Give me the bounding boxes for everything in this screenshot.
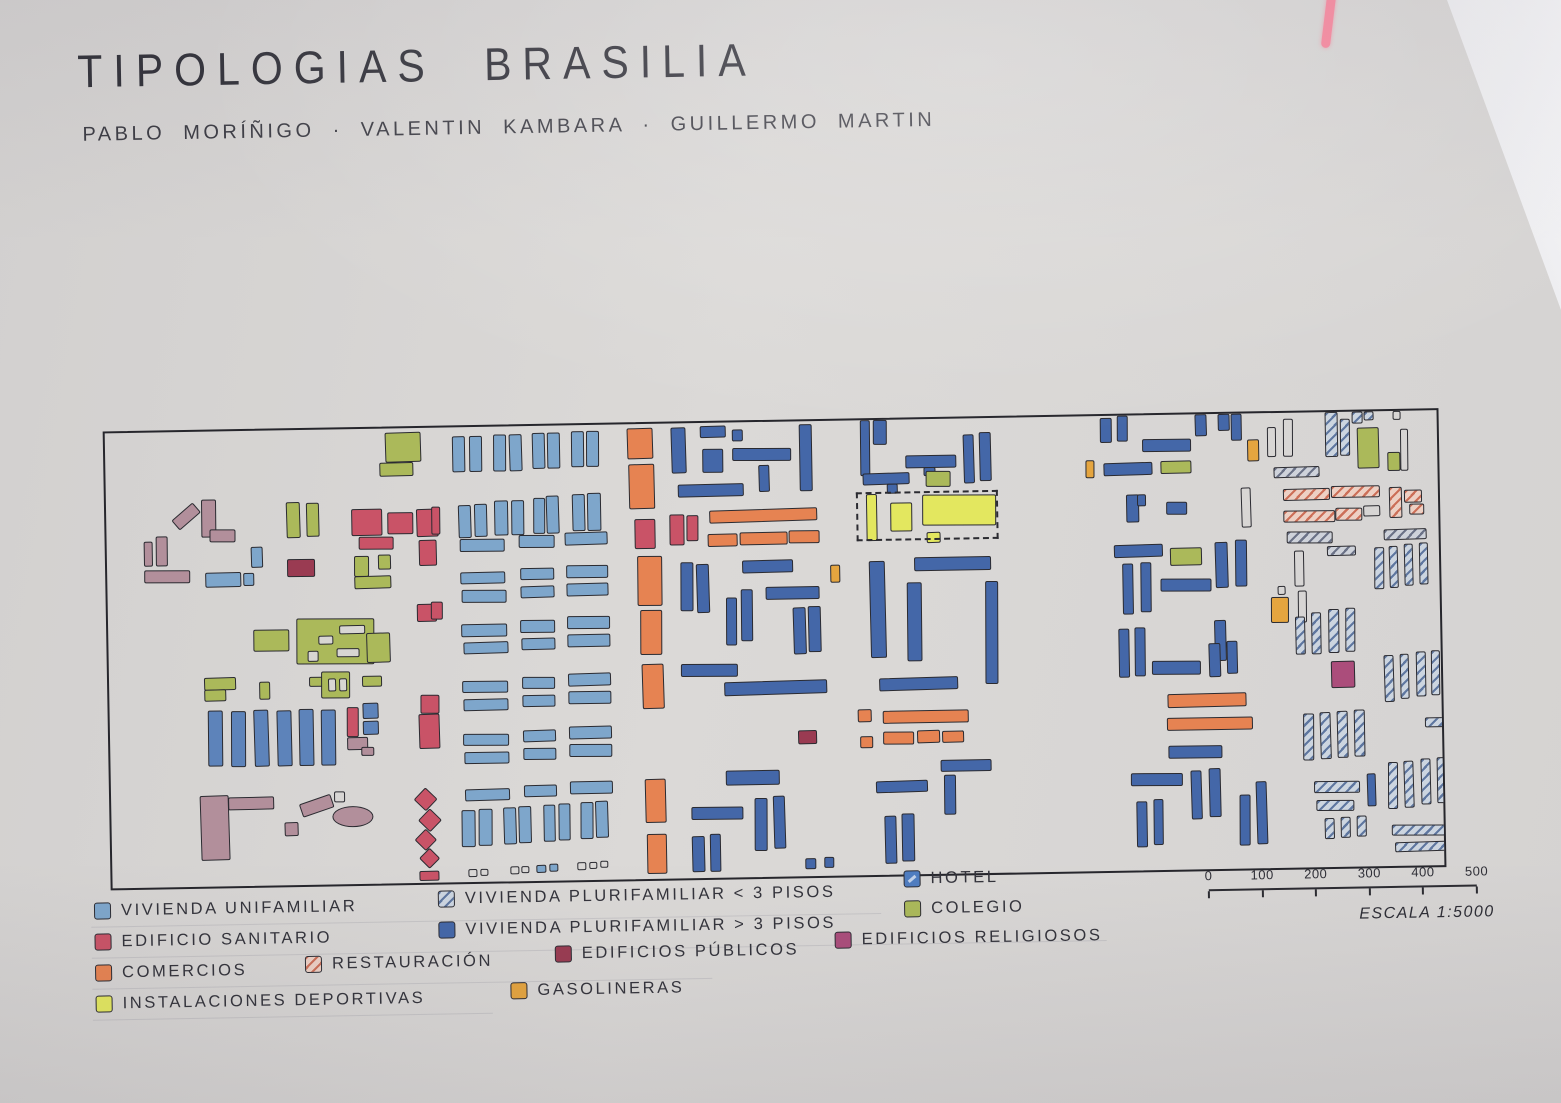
building-uni2 <box>208 710 224 766</box>
building-multi3plus <box>1226 641 1238 674</box>
building-multi3minus <box>1420 758 1431 804</box>
building-multi3plus <box>869 561 887 658</box>
building-multi3minus <box>1388 762 1398 809</box>
building-multi3plus <box>862 472 909 485</box>
page-title: TIPOLOGIAS BRASILIA <box>77 34 757 98</box>
building-uni <box>595 801 609 838</box>
building-uni <box>460 571 505 584</box>
building-colegio <box>926 471 951 487</box>
building-uni <box>463 698 508 711</box>
building-greyhatch <box>1327 545 1356 556</box>
building-uni <box>558 803 570 840</box>
building-multi3plus <box>1235 540 1247 587</box>
building-multi3plus <box>742 559 793 573</box>
building-multi3plus <box>680 562 693 611</box>
building-comercios <box>709 507 817 523</box>
building-multi3plus <box>1168 745 1222 759</box>
building-sanitario <box>415 829 438 852</box>
building-multi3plus <box>1214 542 1228 588</box>
building-outline <box>1241 487 1252 527</box>
building-multi3plus <box>1367 773 1377 806</box>
building-uni <box>566 565 608 578</box>
legend-item-edificio-sanitario: EDIFICIO SANITARIO <box>94 929 332 952</box>
building-uni <box>493 435 506 472</box>
building-multi3plus <box>691 807 743 821</box>
building-religiosos <box>1331 661 1356 689</box>
building-uni <box>532 433 546 469</box>
legend-item-comercios: COMERCIOS <box>95 961 247 983</box>
legend-label: COLEGIO <box>931 897 1025 918</box>
building-multi3plus <box>793 607 807 654</box>
building-multi3minus <box>1404 544 1414 586</box>
legend-item-edificios-publicos: EDIFICIOS PÚBLICOS <box>555 940 800 963</box>
legend-label: HOTEL <box>930 868 998 888</box>
building-multi3plus <box>1153 799 1163 845</box>
building-multi3plus <box>696 564 711 613</box>
building-multi3minus <box>1352 412 1363 424</box>
building-uni2 <box>231 711 246 767</box>
legend-item-plurifamiliar-menos-3-pisos: VIVIENDA PLURIFAMILIAR < 3 PISOS <box>438 883 836 909</box>
building-multi3minus <box>1325 412 1339 457</box>
building-multi3plus <box>907 582 923 661</box>
building-sanitario <box>420 695 439 714</box>
legend-item-restauracion: RESTAURACIÓN <box>305 952 493 974</box>
legend-item-hotel: HOTEL <box>903 868 998 889</box>
building-multi3plus <box>873 420 887 445</box>
building-uni <box>571 431 584 467</box>
building-multi3minus <box>1354 709 1366 756</box>
building-uni <box>494 500 509 535</box>
building-multi3plus <box>1117 416 1128 442</box>
building-hole <box>328 678 336 691</box>
building-mauve <box>209 529 235 542</box>
building-multi3plus <box>1256 781 1269 844</box>
building-uni <box>520 620 555 633</box>
building-comercios <box>942 730 964 743</box>
building-multi3plus <box>824 857 834 868</box>
building-uni <box>462 590 507 603</box>
building-uni <box>533 498 545 534</box>
building-multi3minus <box>1425 717 1444 727</box>
photographed-drawing: TIPOLOGIAS BRASILIA PABLO MORÍÑIGO · VAL… <box>0 0 1561 1103</box>
building-multi3minus <box>1325 818 1336 839</box>
building-comercios <box>640 610 662 655</box>
building-multi3plus <box>914 556 991 571</box>
building-multi3minus <box>1328 609 1339 653</box>
building-sanitario <box>431 602 443 620</box>
building-multi3minus <box>1340 419 1350 456</box>
building-sanitario <box>419 848 440 869</box>
building-comercios <box>860 736 873 748</box>
building-uni <box>564 531 607 545</box>
legend-label: EDIFICIOS RELIGIOSOS <box>861 926 1102 949</box>
building-multi3plus <box>1134 627 1146 676</box>
building-uni <box>586 431 599 467</box>
building-uni <box>568 691 611 704</box>
building-mauve <box>332 806 373 827</box>
building-comercios <box>628 464 655 510</box>
building-uni <box>522 677 555 689</box>
building-uni <box>566 583 608 597</box>
building-colegio <box>1170 547 1202 566</box>
building-uni <box>464 751 509 764</box>
building-restauracion <box>1335 508 1362 521</box>
scale-tick-label: 0 <box>1205 868 1213 883</box>
building-hole <box>339 625 365 634</box>
building-gasolineras <box>1085 460 1094 478</box>
dashed-outline-box <box>856 490 999 541</box>
building-multi3plus <box>726 597 737 645</box>
building-sanitario <box>634 519 656 549</box>
building-greyhatch <box>1287 531 1333 543</box>
building-colegio <box>379 462 413 477</box>
building-publicos <box>798 730 817 744</box>
building-multi3plus <box>979 432 992 481</box>
building-multi3plus <box>765 586 819 600</box>
building-colegio <box>1387 452 1400 471</box>
building-multi3minus <box>1437 757 1447 803</box>
building-multi3minus <box>1345 608 1355 652</box>
building-colegio <box>366 632 391 663</box>
scale-line <box>1209 885 1477 900</box>
building-colegio <box>253 629 289 651</box>
legend-swatch-vivienda-unifamiliar <box>94 902 111 919</box>
building-uni <box>458 505 472 538</box>
building-outline <box>480 869 488 876</box>
building-comercios <box>858 709 872 722</box>
building-uni <box>520 585 554 598</box>
building-uni <box>569 744 612 757</box>
building-comercios <box>917 730 940 744</box>
legend-item-instalaciones-deportivas: INSTALACIONES DEPORTIVAS <box>95 989 425 1014</box>
building-multi3minus <box>1337 711 1349 758</box>
scale-tick-label: 500 <box>1465 863 1488 878</box>
building-multi3plus <box>941 759 992 772</box>
building-restauracion <box>1409 503 1424 514</box>
building-multi3plus <box>1152 661 1201 675</box>
building-multi3minus <box>1341 817 1351 838</box>
sheet-content: TIPOLOGIAS BRASILIA PABLO MORÍÑIGO · VAL… <box>0 0 1561 1103</box>
building-multi3minus <box>1316 800 1354 811</box>
building-comercios <box>740 532 788 546</box>
legend-label: EDIFICIOS PÚBLICOS <box>582 940 800 963</box>
building-multi3minus <box>1311 612 1322 654</box>
legend-item-edificios-religiosos: EDIFICIOS RELIGIOSOS <box>834 926 1102 950</box>
building-outline <box>1363 505 1380 517</box>
building-uni <box>462 681 508 693</box>
building-multi3plus <box>1160 578 1211 591</box>
building-sanitario <box>686 515 698 541</box>
building-comercios <box>637 556 663 606</box>
building-multi3plus <box>1131 773 1183 786</box>
building-sanitario <box>418 713 440 749</box>
building-uni <box>469 436 482 472</box>
legend-item-plurifamiliar-mas-3-pisos: VIVIENDA PLURIFAMILIAR > 3 PISOS <box>438 914 836 940</box>
building-restauracion <box>1283 510 1335 523</box>
building-multi3plus <box>1208 643 1221 677</box>
building-comercios <box>626 428 653 460</box>
building-comercios <box>707 533 737 547</box>
building-outline <box>1267 427 1276 457</box>
building-uni <box>524 784 557 797</box>
building-mauve <box>144 570 190 583</box>
building-uni <box>465 788 510 801</box>
building-sanitario <box>431 507 440 535</box>
building-uni <box>570 781 613 795</box>
building-hole <box>308 651 319 662</box>
scale-caption: ESCALA 1:5000 <box>1359 903 1495 923</box>
building-outline <box>600 861 608 868</box>
building-multi3plus <box>860 420 871 476</box>
scale-tick-label: 300 <box>1358 865 1381 880</box>
building-outline <box>521 866 529 873</box>
building-sanitario <box>419 540 438 566</box>
building-multi3plus <box>702 449 723 473</box>
building-uni <box>568 672 611 686</box>
building-restauracion <box>1404 489 1422 502</box>
building-multi3minus <box>1419 542 1429 584</box>
building-outline <box>334 791 345 802</box>
building-multi3plus <box>1140 562 1152 612</box>
building-colegio <box>204 689 226 702</box>
building-uni <box>520 568 554 581</box>
building-multi3minus <box>1416 651 1427 696</box>
building-outline <box>1277 586 1285 595</box>
building-comercios <box>883 709 969 723</box>
legend-swatch-restauracion <box>305 956 322 973</box>
building-multi3plus <box>876 780 928 794</box>
building-uni <box>522 695 555 708</box>
building-multi3plus <box>710 834 722 872</box>
legend-label: VIVIENDA PLURIFAMILIAR < 3 PISOS <box>465 883 836 908</box>
building-greyhatch <box>1383 528 1426 540</box>
building-outline <box>468 869 477 877</box>
building-multi3minus <box>1403 761 1414 808</box>
building-multi3plus <box>1209 768 1222 817</box>
building-uni <box>461 810 475 847</box>
building-multi3plus <box>1231 414 1242 441</box>
legend-swatch-plurifamiliar-mas-3-pisos <box>438 921 455 938</box>
building-multi3plus <box>1142 439 1191 453</box>
building-colegio <box>306 503 320 537</box>
building-comercios <box>883 732 914 745</box>
building-colegio <box>354 556 369 577</box>
building-mauve <box>284 822 298 836</box>
building-uni <box>243 573 254 586</box>
building-mauve <box>299 794 335 818</box>
building-multi3plus <box>808 606 822 652</box>
building-uni <box>521 637 555 650</box>
building-multi3plus <box>724 679 827 696</box>
building-multi3plus <box>1122 563 1134 614</box>
building-uni <box>572 494 586 531</box>
legend-label: RESTAURACIÓN <box>332 952 493 974</box>
building-outline <box>577 862 586 870</box>
building-gasolineras <box>830 565 840 583</box>
building-uni <box>518 806 532 843</box>
legend-swatch-gasolineras <box>510 982 527 999</box>
building-multi3plus <box>700 425 726 438</box>
scale-tick-labels: 0100200300400500 <box>1208 864 1476 885</box>
legend-label: INSTALACIONES DEPORTIVAS <box>122 989 425 1013</box>
legend-swatch-comercios <box>95 964 112 981</box>
building-uni2 <box>276 710 292 766</box>
building-mauve <box>361 747 374 756</box>
scale-bar: 0100200300400500 ESCALA 1:5000 <box>1208 864 1477 900</box>
building-uni <box>452 436 466 472</box>
legend-swatch-plurifamiliar-menos-3-pisos <box>438 890 455 907</box>
building-multi3plus <box>1166 502 1187 515</box>
scale-tick-label: 200 <box>1304 866 1327 881</box>
building-mauve <box>156 536 168 566</box>
building-sanitario <box>414 787 438 811</box>
building-multi3plus <box>773 796 787 849</box>
building-colegio <box>362 676 382 687</box>
legend-item-vivienda-unifamiliar: VIVIENDA UNIFAMILIAR <box>94 897 358 921</box>
legend-swatch-edificios-publicos <box>555 945 572 962</box>
legend-swatch-hotel <box>903 870 920 887</box>
building-colegio <box>1357 427 1380 469</box>
building-multi3minus <box>1395 841 1447 853</box>
building-multi3plus <box>1194 414 1207 436</box>
building-uni <box>519 535 555 548</box>
building-multi3plus <box>726 770 780 786</box>
building-gasolineras <box>1271 597 1289 623</box>
building-uni <box>205 572 241 588</box>
legend-label: COMERCIOS <box>122 961 247 982</box>
building-uni2 <box>321 709 337 765</box>
legend-label: VIVIENDA PLURIFAMILIAR > 3 PISOS <box>465 914 836 939</box>
building-multi3plus <box>985 581 998 684</box>
building-comercios <box>1167 716 1253 730</box>
building-mauve <box>171 502 201 530</box>
building-mauve <box>144 542 153 567</box>
building-uni <box>503 807 517 844</box>
scale-tick <box>1369 888 1371 895</box>
building-multi3minus <box>1363 411 1373 420</box>
building-multi3minus <box>1431 650 1440 695</box>
building-multi3plus <box>1100 418 1112 443</box>
building-restauracion <box>1283 488 1330 501</box>
building-multi3minus <box>1314 781 1360 793</box>
building-multi3minus <box>1392 824 1447 835</box>
building-multi3plus <box>732 429 743 441</box>
building-sanitario <box>669 514 684 545</box>
building-multi3plus <box>741 589 754 641</box>
building-uni <box>567 616 610 629</box>
building-sanitario <box>418 808 442 832</box>
building-comercios <box>1167 692 1246 708</box>
building-uni <box>549 864 558 872</box>
scale-tick <box>1208 891 1210 898</box>
building-multi3plus <box>884 816 897 864</box>
building-multi3plus <box>1137 494 1146 506</box>
building-multi3plus <box>1190 770 1203 819</box>
legend: VIVIENDA UNIFAMILIAR EDIFICIO SANITARIO … <box>0 0 1551 13</box>
building-mauve <box>228 796 274 810</box>
building-comercios <box>789 530 820 543</box>
building-sanitario <box>351 509 382 537</box>
building-colegio <box>354 575 391 589</box>
building-sanitario <box>359 537 394 550</box>
building-sanitario <box>347 707 359 737</box>
building-comercios <box>645 779 667 823</box>
building-multi3minus <box>1303 713 1314 760</box>
building-multi3minus <box>1400 654 1410 699</box>
building-uni <box>536 865 546 873</box>
building-outline <box>510 866 519 874</box>
building-multi3minus <box>1319 712 1331 759</box>
building-restauracion <box>1389 487 1403 518</box>
building-outline <box>1283 419 1293 457</box>
building-colegio <box>259 682 270 700</box>
building-uni <box>460 539 505 552</box>
building-uni <box>479 809 493 846</box>
building-hole <box>318 635 333 644</box>
authors: PABLO MORÍÑIGO · VALENTIN KAMBARA · GUIL… <box>82 109 935 147</box>
legend-label: EDIFICIO SANITARIO <box>121 929 332 952</box>
building-multi3plus <box>799 424 813 491</box>
legend-swatch-edificio-sanitario <box>94 933 111 950</box>
building-multi3plus <box>962 434 975 483</box>
building-multi3plus <box>670 427 686 473</box>
building-multi3plus <box>1103 462 1152 477</box>
building-multi3plus <box>692 836 706 872</box>
building-uni <box>580 802 593 839</box>
legend-swatch-instalaciones-deportivas <box>96 995 113 1012</box>
building-outline <box>1400 429 1408 471</box>
building-multi3plus <box>678 483 744 498</box>
legend-swatch-edificios-religiosos <box>834 931 851 948</box>
building-uni <box>463 641 508 654</box>
building-multi3plus <box>1118 629 1130 678</box>
building-outline <box>1393 411 1401 420</box>
legend-swatch-colegio <box>904 900 921 917</box>
legend-label: GASOLINERAS <box>537 978 684 1000</box>
building-uni <box>523 729 556 742</box>
building-hole <box>339 678 347 691</box>
building-uni2 <box>362 703 378 719</box>
typology-map <box>103 408 1447 890</box>
legend-label: VIVIENDA UNIFAMILIAR <box>121 897 358 920</box>
building-colegio <box>378 554 391 569</box>
building-multi3plus <box>879 676 958 691</box>
building-colegio <box>385 432 422 463</box>
legend-item-colegio: COLEGIO <box>904 897 1025 918</box>
building-multi3plus <box>732 448 791 461</box>
building-uni <box>509 434 523 471</box>
building-colegio <box>286 502 301 538</box>
building-uni <box>474 504 488 537</box>
building-gasolineras <box>1247 439 1259 461</box>
building-uni <box>463 734 509 746</box>
building-uni <box>587 493 602 531</box>
pencil-guideline <box>93 1013 493 1021</box>
building-multi3minus <box>1389 546 1399 588</box>
building-uni2 <box>253 710 270 767</box>
building-comercios <box>641 664 664 710</box>
scale-tick <box>1422 887 1424 894</box>
building-multi3plus <box>1217 414 1229 431</box>
building-outline <box>1294 551 1305 587</box>
building-colegio <box>1160 460 1191 474</box>
building-uni <box>251 547 264 568</box>
building-multi3minus <box>1357 815 1367 836</box>
building-comercios <box>647 834 668 874</box>
building-uni <box>569 725 612 739</box>
building-outline <box>589 862 597 869</box>
building-uni <box>547 432 561 468</box>
